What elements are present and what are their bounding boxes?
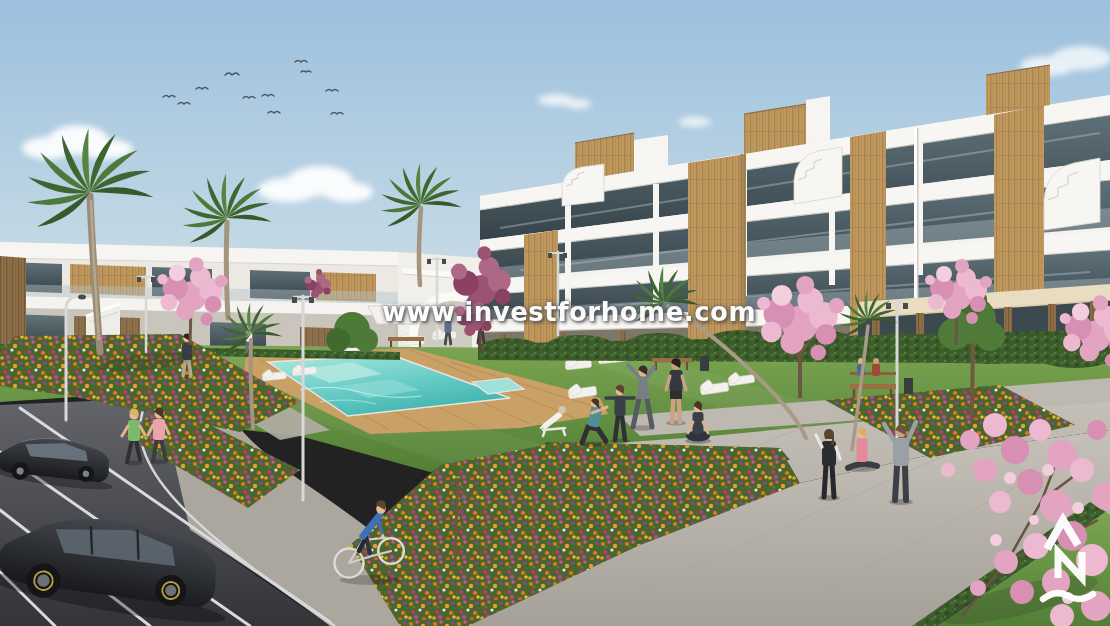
trash-bin	[904, 378, 913, 394]
trash-bin	[700, 356, 709, 371]
scene-svg	[0, 0, 1110, 626]
rendering-scene: www.investforhome.com	[0, 0, 1110, 626]
